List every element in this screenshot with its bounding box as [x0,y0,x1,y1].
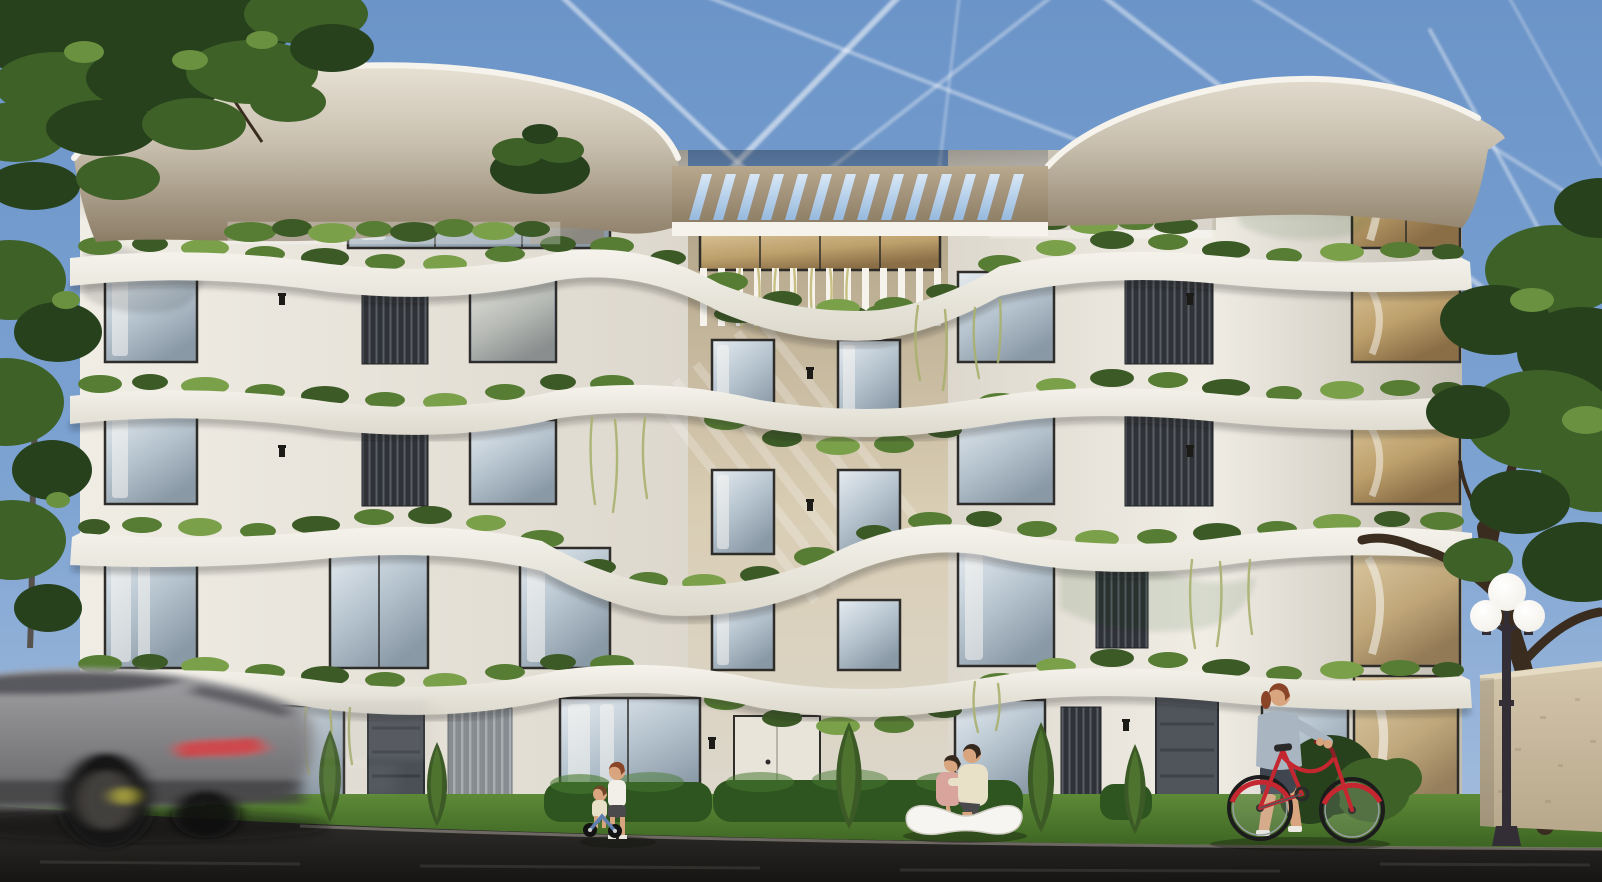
architectural-render [0,0,1602,882]
window [712,470,774,554]
sconce-icon [278,445,286,457]
sconce-icon [1186,445,1194,457]
pergola [672,166,1048,236]
roof-terrace-left [224,219,560,244]
sconce-icon [806,367,814,379]
boundary-wall [1480,664,1602,832]
shadow [580,836,656,848]
sconce-icon [708,737,716,749]
corner-window [1352,548,1460,666]
lamp-globe [1470,600,1502,632]
scene-canvas [0,0,1602,882]
pergola-fascia [672,222,1048,236]
window [330,546,428,668]
sconce-icon [1122,719,1130,731]
sconce-icon [1186,293,1194,305]
sconce-icon [806,499,814,511]
lamp-globe [1513,600,1545,632]
window [838,600,900,670]
sconce-icon [278,293,286,305]
